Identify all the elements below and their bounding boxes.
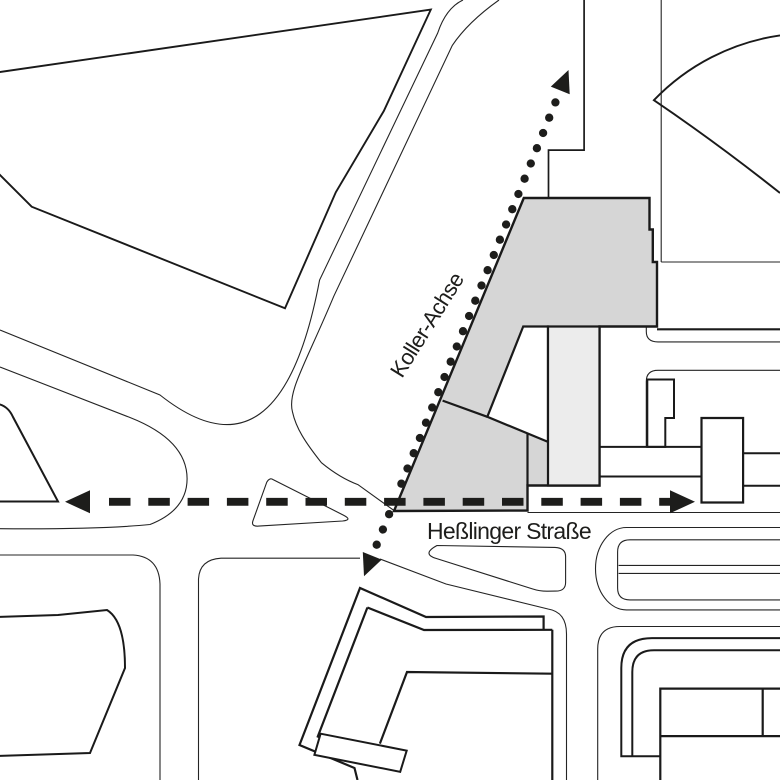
svg-text:Heßlinger Straße: Heßlinger Straße — [427, 518, 591, 544]
